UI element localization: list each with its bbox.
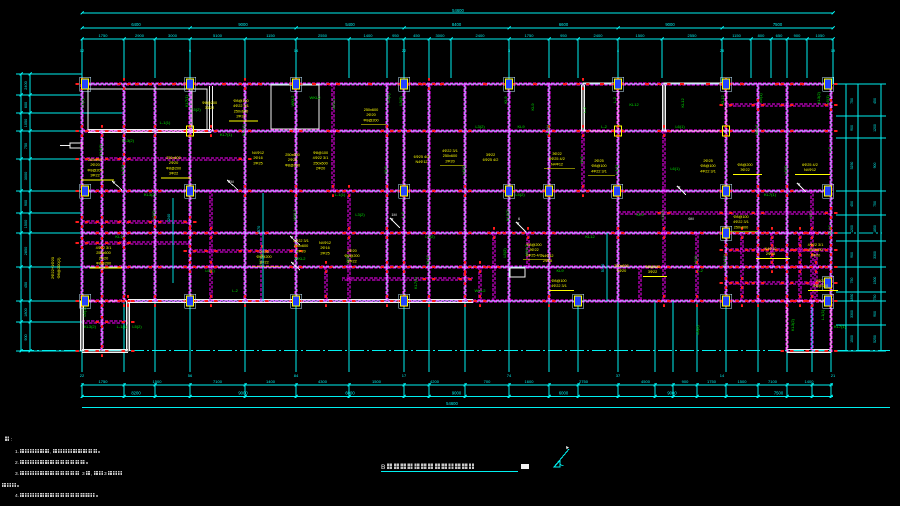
svg-text:37: 37 [616,373,621,378]
svg-text:KL3(2): KL3(2) [98,143,103,156]
svg-text:L6(1): L6(1) [82,307,87,317]
svg-text:WKL2: WKL2 [292,209,297,221]
svg-text:3: 3 [104,471,107,477]
svg-text:KL9: KL9 [556,268,564,273]
svg-text:L5(2): L5(2) [80,98,85,108]
svg-text:L-2: L-2 [612,96,617,103]
svg-text:6Φ25 4/2: 6Φ25 4/2 [802,163,818,167]
svg-text:22: 22 [402,48,407,53]
svg-text:KL7(1): KL7(1) [764,192,777,197]
svg-text:2Φ25: 2Φ25 [816,279,825,283]
svg-text:2Φ20: 2Φ20 [296,249,305,253]
svg-text:3Φ22: 3Φ22 [740,168,749,172]
svg-text:5140: 5140 [601,264,605,272]
svg-text:Φ8@200: Φ8@200 [363,118,378,122]
svg-text:Φ8@200: Φ8@200 [96,262,111,266]
svg-text:5100: 5100 [213,33,223,38]
svg-text:1050: 1050 [24,119,28,127]
svg-text:1M: 1M [228,180,233,184]
svg-text:8200: 8200 [131,391,141,396]
svg-text:6000: 6000 [345,391,355,396]
svg-text:250x600: 250x600 [166,156,181,160]
svg-text:2Φ20: 2Φ20 [90,163,99,167]
svg-text:Φ8@100: Φ8@100 [813,284,828,288]
svg-text:Φ8@200: Φ8@200 [285,163,300,167]
svg-text:N4Φ12: N4Φ12 [551,162,563,166]
svg-text:L5(2): L5(2) [502,248,507,258]
svg-text:2.: 2. [15,460,19,466]
svg-text:KL9: KL9 [636,212,644,217]
svg-text:56: 56 [188,373,193,378]
svg-text:1500: 1500 [850,335,854,343]
svg-text:3000: 3000 [24,172,28,180]
svg-text:900: 900 [682,379,689,384]
svg-text:4Φ22 3/1: 4Φ22 3/1 [591,169,607,173]
svg-text:1800: 1800 [24,308,28,316]
svg-text:950: 950 [392,33,399,38]
svg-text:L-2: L-2 [601,124,608,129]
svg-text:2Φ22+1Φ20: 2Φ22+1Φ20 [50,256,55,279]
svg-text:3Φ22: 3Φ22 [486,153,495,157]
svg-text:L6(1): L6(1) [825,95,830,105]
svg-text:B: B [381,464,386,471]
svg-text:L-1(1): L-1(1) [545,124,550,135]
svg-text:250x600: 250x600 [443,154,458,158]
svg-text:84: 84 [294,373,299,378]
svg-text:Φ8@200: Φ8@200 [737,163,752,167]
svg-text:4500: 4500 [641,379,651,384]
svg-text:Φ8@200(2): Φ8@200(2) [56,257,61,279]
svg-text:KL3(2): KL3(2) [144,192,157,197]
svg-text:2Φ16: 2Φ16 [320,246,329,250]
svg-text:2400: 2400 [594,33,604,38]
svg-text:L5(2): L5(2) [695,325,700,335]
svg-text:L5(2): L5(2) [515,192,525,197]
svg-text:250x600: 250x600 [88,158,103,162]
svg-text:3000: 3000 [168,33,178,38]
svg-text:750: 750 [873,295,877,301]
svg-text:6: 6 [518,217,520,221]
svg-text:1050: 1050 [816,33,826,38]
svg-text:22: 22 [80,373,85,378]
svg-text:8400: 8400 [452,22,462,27]
svg-text:750: 750 [850,278,854,284]
svg-text:2Φ25: 2Φ25 [320,251,329,255]
svg-text:L3(2): L3(2) [783,165,788,175]
svg-text:450: 450 [413,33,420,38]
svg-text:9000: 9000 [665,22,675,27]
svg-text:KL12: KL12 [680,98,685,108]
svg-text:1200: 1200 [850,225,854,233]
svg-text:2850: 2850 [24,247,28,255]
svg-text:L5(2): L5(2) [151,210,156,220]
svg-text:1.: 1. [15,449,19,455]
svg-text:4Φ22 3/1: 4Φ22 3/1 [442,149,458,153]
svg-text:WKL2: WKL2 [290,95,295,107]
svg-text:250x600: 250x600 [294,244,309,248]
svg-text:1750: 1750 [707,379,717,384]
svg-text:2550: 2550 [318,33,328,38]
svg-text:900: 900 [24,334,28,340]
svg-text:2Φ20: 2Φ20 [347,249,356,253]
svg-text:250x600: 250x600 [614,264,629,268]
svg-text:250x600: 250x600 [734,225,749,229]
svg-text:2Φ25: 2Φ25 [253,161,262,165]
svg-text:N4Φ12: N4Φ12 [764,247,776,251]
svg-text:750: 750 [24,143,28,149]
svg-text:KL9: KL9 [517,124,525,129]
svg-text:L-1(1): L-1(1) [117,324,128,329]
svg-text:4300: 4300 [318,379,328,384]
svg-text:450: 450 [873,98,877,104]
svg-text:Φ8@100: Φ8@100 [551,279,566,283]
svg-text:2Φ20: 2Φ20 [445,159,454,163]
svg-text:L-1(1): L-1(1) [820,309,825,320]
svg-text:1500: 1500 [873,277,877,285]
svg-text:6600: 6600 [559,22,569,27]
svg-text:650: 650 [776,33,783,38]
svg-text:4Φ22 3/1: 4Φ22 3/1 [808,243,824,247]
svg-text:1500: 1500 [738,379,748,384]
svg-text:7500: 7500 [773,22,783,27]
svg-text:L3(2): L3(2) [386,93,391,103]
svg-text:Φ8@100: Φ8@100 [591,164,606,168]
svg-text:L6(1): L6(1) [758,93,763,103]
svg-text:3Φ22: 3Φ22 [205,106,214,110]
svg-text:6Φ25 4/2: 6Φ25 4/2 [549,157,565,161]
svg-text:L3(2): L3(2) [475,124,485,129]
svg-text:6Φ25 4/2: 6Φ25 4/2 [414,155,430,159]
svg-text:L3(2): L3(2) [693,255,698,265]
svg-text:L-1(1): L-1(1) [614,164,619,175]
svg-text:WKL2: WKL2 [310,95,322,100]
svg-text:4Φ22 3/1: 4Φ22 3/1 [96,246,112,250]
svg-text:2Φ20: 2Φ20 [316,167,325,171]
svg-text:1150: 1150 [732,33,741,38]
svg-text:12: 12 [80,48,85,53]
svg-text:Φ8@200: Φ8@200 [645,265,660,269]
svg-text:3300: 3300 [873,251,877,259]
svg-text:2Φ20: 2Φ20 [366,113,375,117]
svg-text:2Φ20: 2Φ20 [288,158,297,162]
svg-text:2Φ20: 2Φ20 [99,256,108,260]
svg-text:900: 900 [24,200,28,206]
svg-text:N4Φ12: N4Φ12 [804,168,816,172]
svg-text:750: 750 [850,98,854,104]
svg-text:L-1(1): L-1(1) [120,164,125,175]
svg-text:900: 900 [873,311,877,317]
svg-text:250x600: 250x600 [96,251,111,255]
svg-text:N4Φ12: N4Φ12 [319,241,331,245]
svg-text:900: 900 [850,252,854,258]
svg-text:Φ8@200: Φ8@200 [166,166,181,170]
svg-text:14: 14 [294,48,299,53]
svg-text:5250: 5250 [850,162,854,170]
svg-text:4200: 4200 [430,379,440,384]
svg-text:L6(1): L6(1) [670,166,680,171]
svg-text:WKL2: WKL2 [754,124,759,136]
svg-text:2Φ16: 2Φ16 [766,252,775,256]
svg-text:4870: 4870 [257,226,261,234]
svg-text:250x600: 250x600 [808,248,823,252]
svg-text:2Φ20: 2Φ20 [617,269,626,273]
svg-text:7100: 7100 [768,379,778,384]
svg-text:KL3(2): KL3(2) [790,318,795,331]
svg-text:KL12: KL12 [720,95,725,105]
svg-text:1500: 1500 [636,33,646,38]
svg-text:1850: 1850 [873,225,877,233]
svg-text:74: 74 [507,373,512,378]
svg-text:5400: 5400 [345,22,355,27]
svg-text:4.: 4. [15,493,19,499]
svg-text:7100: 7100 [213,379,223,384]
svg-text:450: 450 [850,201,854,207]
svg-text:2400: 2400 [24,81,28,89]
svg-text:1750: 1750 [525,33,535,38]
svg-text:KL9: KL9 [808,211,813,219]
svg-text:KL3(2): KL3(2) [122,138,135,143]
svg-text:1750: 1750 [99,33,109,38]
svg-text:17: 17 [402,373,407,378]
svg-text:4Φ22 3/1: 4Φ22 3/1 [233,104,249,108]
svg-text:250x600: 250x600 [234,109,249,113]
svg-text:1400: 1400 [266,379,276,384]
svg-text:9000: 9000 [238,391,248,396]
svg-text:L-1(1): L-1(1) [160,120,171,125]
svg-text:Φ8@100: Φ8@100 [700,164,715,168]
svg-text:21: 21 [831,373,836,378]
svg-text:1750: 1750 [99,379,109,384]
svg-text:600: 600 [24,102,28,108]
svg-text:800: 800 [758,33,765,38]
svg-text:2Φ20: 2Φ20 [811,253,820,257]
svg-text:4Φ22 3/1: 4Φ22 3/1 [700,169,716,173]
svg-text:KL7(1): KL7(1) [834,324,847,329]
svg-text:N4Φ12: N4Φ12 [541,254,553,258]
svg-text:700: 700 [484,379,491,384]
svg-text:1M: 1M [391,213,396,217]
svg-text:KL7(1): KL7(1) [241,123,246,136]
svg-text:L5(2): L5(2) [191,107,201,112]
svg-text:450: 450 [24,282,28,288]
svg-text:WKL2: WKL2 [331,98,336,110]
svg-text:2Φ25: 2Φ25 [703,159,712,163]
svg-text:250x600: 250x600 [364,108,379,112]
svg-text:L3(2): L3(2) [355,212,365,217]
svg-text:1200: 1200 [873,124,877,132]
svg-text:,: , [91,472,92,477]
svg-text:2900: 2900 [135,33,145,38]
svg-text:KL7(1): KL7(1) [413,276,418,289]
svg-text:KL3(2): KL3(2) [816,91,821,104]
svg-text:KL12: KL12 [585,234,595,239]
svg-text:2400: 2400 [476,33,486,38]
svg-text:Φ8@100: Φ8@100 [233,99,248,103]
svg-text:L6(1): L6(1) [205,268,215,273]
svg-text:1500: 1500 [372,379,382,384]
svg-text:4Φ22 3/1: 4Φ22 3/1 [313,156,329,160]
svg-text:1400: 1400 [805,379,815,384]
svg-text:KL9: KL9 [503,96,508,104]
svg-text:L3(2): L3(2) [345,255,350,265]
svg-text:1400: 1400 [364,33,374,38]
svg-text:900: 900 [850,125,854,131]
svg-text:KL3(2): KL3(2) [84,324,97,329]
svg-text:2750: 2750 [579,379,589,384]
svg-text:KL12: KL12 [629,102,639,107]
svg-text:14: 14 [720,373,725,378]
svg-text:L-2: L-2 [697,268,704,273]
svg-text:54600: 54600 [452,8,464,13]
svg-text:WKL2: WKL2 [295,256,307,261]
svg-text:KL12: KL12 [425,255,430,265]
svg-text:28: 28 [720,48,725,53]
svg-text:2Φ20: 2Φ20 [236,115,245,119]
svg-text:N4Φ12: N4Φ12 [415,160,427,164]
svg-text:9000: 9000 [238,22,248,27]
svg-text:L-2: L-2 [582,106,587,113]
svg-text:2Φ20: 2Φ20 [169,161,178,165]
svg-text:KL9: KL9 [530,103,535,111]
svg-text:1500: 1500 [24,220,28,228]
svg-text:KL3(2): KL3(2) [505,208,510,221]
svg-text:6Φ25 4/2: 6Φ25 4/2 [483,158,499,162]
svg-text:6400: 6400 [131,22,141,27]
svg-text:900: 900 [794,33,801,38]
svg-text:9000: 9000 [452,391,462,396]
svg-text:L-2: L-2 [400,211,405,218]
svg-text:1600: 1600 [525,379,535,384]
svg-text:L6(1): L6(1) [461,165,466,175]
svg-text:L-1(1): L-1(1) [335,192,346,197]
svg-text:L-2: L-2 [827,146,832,153]
svg-text:6M: 6M [688,217,693,221]
svg-text:750: 750 [873,201,877,207]
svg-text:KL7(1): KL7(1) [258,253,263,266]
svg-text:N4Φ12: N4Φ12 [252,151,264,155]
svg-text:9000: 9000 [667,391,677,396]
svg-text:900: 900 [873,163,877,169]
svg-text:950: 950 [560,33,567,38]
svg-text:3240: 3240 [167,214,171,222]
svg-text:3Φ22: 3Φ22 [169,172,178,176]
svg-text:WKL2: WKL2 [524,244,529,256]
svg-text:3Φ22: 3Φ22 [648,270,657,274]
svg-text:3000: 3000 [436,33,446,38]
svg-text:,: , [50,450,51,455]
svg-text:KL7(1): KL7(1) [220,132,233,137]
svg-text:KL7(1): KL7(1) [722,253,727,266]
svg-text:2Φ16: 2Φ16 [253,156,262,160]
svg-text:54600: 54600 [446,401,458,406]
svg-text:KL9: KL9 [579,156,584,164]
svg-text:Φ8@100: Φ8@100 [733,215,748,219]
svg-text:4Φ22 3/1: 4Φ22 3/1 [551,284,567,288]
svg-text:1850: 1850 [850,294,854,302]
svg-text:2550: 2550 [688,33,698,38]
svg-text:1500: 1500 [153,379,163,384]
svg-text:5250: 5250 [873,335,877,343]
svg-text:KL12: KL12 [827,225,832,235]
svg-text:250x600: 250x600 [285,153,300,157]
svg-text:7500: 7500 [774,391,784,396]
svg-text:WKL2: WKL2 [475,288,487,293]
svg-text:L6(1): L6(1) [675,124,685,129]
svg-text:1150: 1150 [266,33,275,38]
svg-text:L3(2): L3(2) [398,96,403,106]
svg-text:3: 3 [82,471,85,477]
svg-text:KL12: KL12 [115,234,125,239]
svg-text:Φ8@200: Φ8@200 [202,101,217,105]
svg-text:6000: 6000 [559,391,569,396]
svg-text:L3(2): L3(2) [425,234,435,239]
svg-text:L5(2): L5(2) [132,324,142,329]
svg-text::: : [11,437,12,443]
svg-text:3Φ22: 3Φ22 [90,174,99,178]
svg-text:2Φ20: 2Φ20 [259,250,268,254]
svg-text:19: 19 [831,48,836,53]
svg-text:4Φ22 3/1: 4Φ22 3/1 [733,220,749,224]
svg-text:KL9: KL9 [383,166,388,174]
svg-text:Φ8@200: Φ8@200 [87,168,102,172]
svg-text:L5(2): L5(2) [660,210,665,220]
svg-text:3Φ22: 3Φ22 [552,152,561,156]
svg-text:2Φ25: 2Φ25 [594,159,603,163]
svg-text:2Φ16: 2Φ16 [543,259,552,263]
svg-text:3Φ22: 3Φ22 [529,248,538,252]
svg-text:Φ8@100: Φ8@100 [313,151,328,155]
svg-text:KL7(1): KL7(1) [184,94,189,107]
svg-text:L-2: L-2 [232,288,239,293]
svg-text:3.: 3. [15,471,19,477]
svg-text:250x600: 250x600 [313,161,328,165]
svg-text:3300: 3300 [850,310,854,318]
